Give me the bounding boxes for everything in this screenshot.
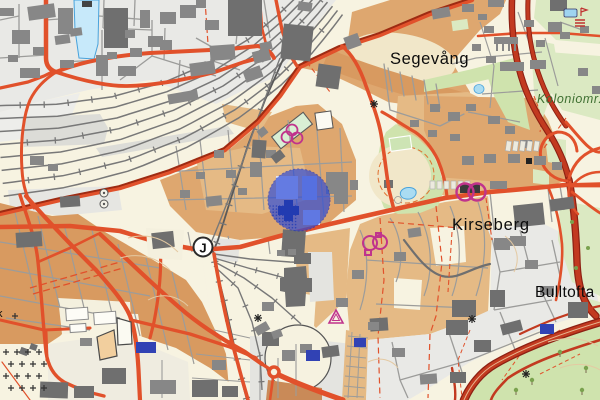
svg-text:Koloniomr.: Koloniomr. <box>537 92 600 106</box>
svg-text:J: J <box>199 241 206 256</box>
svg-text:Segevång: Segevång <box>390 50 469 68</box>
svg-text:Bulltofta: Bulltofta <box>535 284 595 301</box>
svg-text:Kirseberg: Kirseberg <box>452 216 530 234</box>
